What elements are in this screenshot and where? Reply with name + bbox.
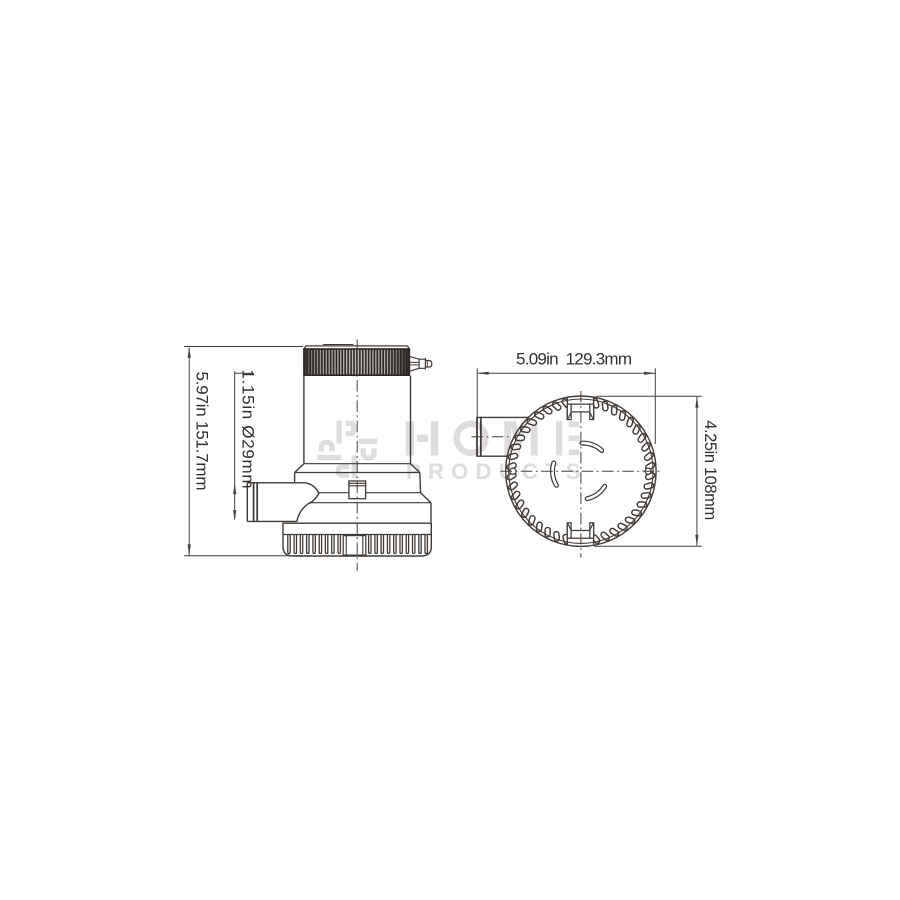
svg-text:5.09in 129.3mm: 5.09in 129.3mm xyxy=(516,350,632,369)
svg-text:1.15in Ø29mm: 1.15in Ø29mm xyxy=(238,370,257,489)
svg-text:5.97in 151.7mm: 5.97in 151.7mm xyxy=(193,372,212,491)
svg-text:PRODUCTS: PRODUCTS xyxy=(406,459,588,484)
svg-text:4.25in 108mm: 4.25in 108mm xyxy=(701,420,719,520)
